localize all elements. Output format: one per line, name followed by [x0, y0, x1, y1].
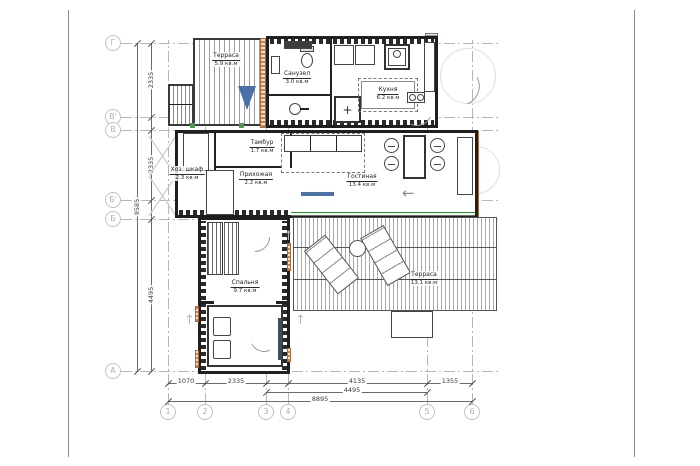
cabinet-x: [355, 45, 375, 65]
dim-label-4135: 4135: [348, 378, 367, 385]
grid-bubble-col-4: 4: [280, 404, 296, 420]
grid-bubble-col-5: 5: [419, 404, 435, 420]
room-label-terrace-bottom: Терраса 13.1 кв.м: [410, 271, 438, 286]
brace-x: [149, 176, 176, 216]
grid-bubble-row-g: Г: [105, 35, 121, 51]
corner-marker: [239, 123, 244, 128]
room-label-utility: Хоз. шкаф 2.3 кв.м: [170, 166, 205, 181]
grid-bubble-row-b1: Б': [105, 192, 121, 208]
dining-table: [403, 135, 426, 179]
north-arrow-icon: [238, 86, 256, 110]
room-label-bedroom: Спальня 9.7 кв.м: [231, 279, 260, 294]
dim-label-2335: 2335: [227, 378, 246, 385]
dim-label-left-total: 9585: [134, 198, 141, 217]
dining-chair: [430, 138, 445, 153]
partition-tambour-bottom: [214, 166, 282, 168]
bedroom-mid-wall: [276, 301, 287, 304]
floor-plan-canvas: Г В' В Б' Б А 1 2 3 4 5 6 2335 2335 4495…: [0, 0, 700, 466]
wardrobe-divider: [222, 222, 224, 275]
shelving-unit: [457, 137, 473, 195]
corner-marker: [190, 123, 195, 128]
partition-bath-lower: [269, 94, 330, 96]
flow-arrow-up: ↑: [184, 314, 195, 327]
grid-bubble-row-a: А: [105, 363, 121, 379]
bath-counter: [284, 41, 312, 49]
bedroom-tv: [278, 318, 282, 360]
wall-insulation: [195, 306, 199, 322]
room-label-hallway: Прихожая 2.2 кв.м: [239, 171, 273, 186]
flow-arrow-left: ←: [402, 186, 415, 201]
room-label-kitchen: Кухня 6.2 кв.м: [377, 86, 400, 101]
wall-insulation: [287, 348, 291, 362]
dining-chair: [384, 156, 399, 171]
sofa: [284, 135, 362, 152]
dim-label-left-3: 4495: [148, 286, 155, 305]
sofa-divider: [336, 136, 337, 151]
laundry-sink-tap: [300, 108, 309, 110]
grid-bubble-row-v: В: [105, 122, 121, 138]
tv-unit: [301, 192, 334, 196]
grid-bubble-col-2: 2: [197, 404, 213, 420]
flow-arrow-up: ↑: [295, 314, 306, 327]
shower-tray: +: [334, 96, 361, 123]
grid-bubble-row-b: Б: [105, 211, 121, 227]
sheet-border-left: [68, 10, 69, 457]
dim-label-4495: 4495: [343, 387, 362, 394]
dim-label-left-1: 2335: [148, 71, 155, 90]
deck-table: [349, 240, 366, 257]
room-label-bathroom: Санузел 3.0 кв.м: [283, 70, 311, 85]
pillow: [213, 340, 231, 359]
window-strip-deck: [293, 212, 460, 216]
sofa-divider: [310, 136, 311, 151]
grid-line-a: [121, 371, 498, 372]
bedroom-mid-wall: [201, 301, 214, 304]
cabinet-x: [334, 45, 354, 65]
dim-label-1355: 1355: [441, 378, 460, 385]
corrugated-wall: [179, 210, 291, 215]
terrace-stairs-divider: [169, 104, 193, 105]
loft-ladder: [206, 170, 234, 215]
grid-bubble-col-1: 1: [160, 404, 176, 420]
dim-label-1070: 1070: [177, 378, 196, 385]
wall-insulation: [195, 350, 199, 368]
dining-chair: [384, 138, 399, 153]
wall-insulation: [287, 243, 291, 271]
grid-bubble-col-6: 6: [464, 404, 480, 420]
pillow: [213, 317, 231, 336]
toilet-bowl: [301, 53, 313, 68]
grid-bubble-col-3: 3: [258, 404, 274, 420]
room-label-tambour: Тамбур 1.7 кв.м: [250, 139, 275, 154]
dining-chair: [430, 156, 445, 171]
deck-steps: [391, 311, 433, 338]
shower-plus: +: [342, 103, 352, 117]
washbasin: [271, 56, 280, 74]
partition-bath-kitchen: [330, 39, 332, 125]
washing-machine-door: [393, 50, 401, 58]
sheet-border-right: [634, 10, 635, 457]
corrugated-wall: [201, 221, 206, 370]
terrace-stairs-module: [168, 84, 194, 126]
room-label-terrace-top: Терраса 5.9 кв.м: [212, 52, 240, 67]
room-label-living: Гостиная 13.4 кв.м: [346, 173, 377, 188]
dim-label-8895: 8895: [311, 396, 330, 403]
